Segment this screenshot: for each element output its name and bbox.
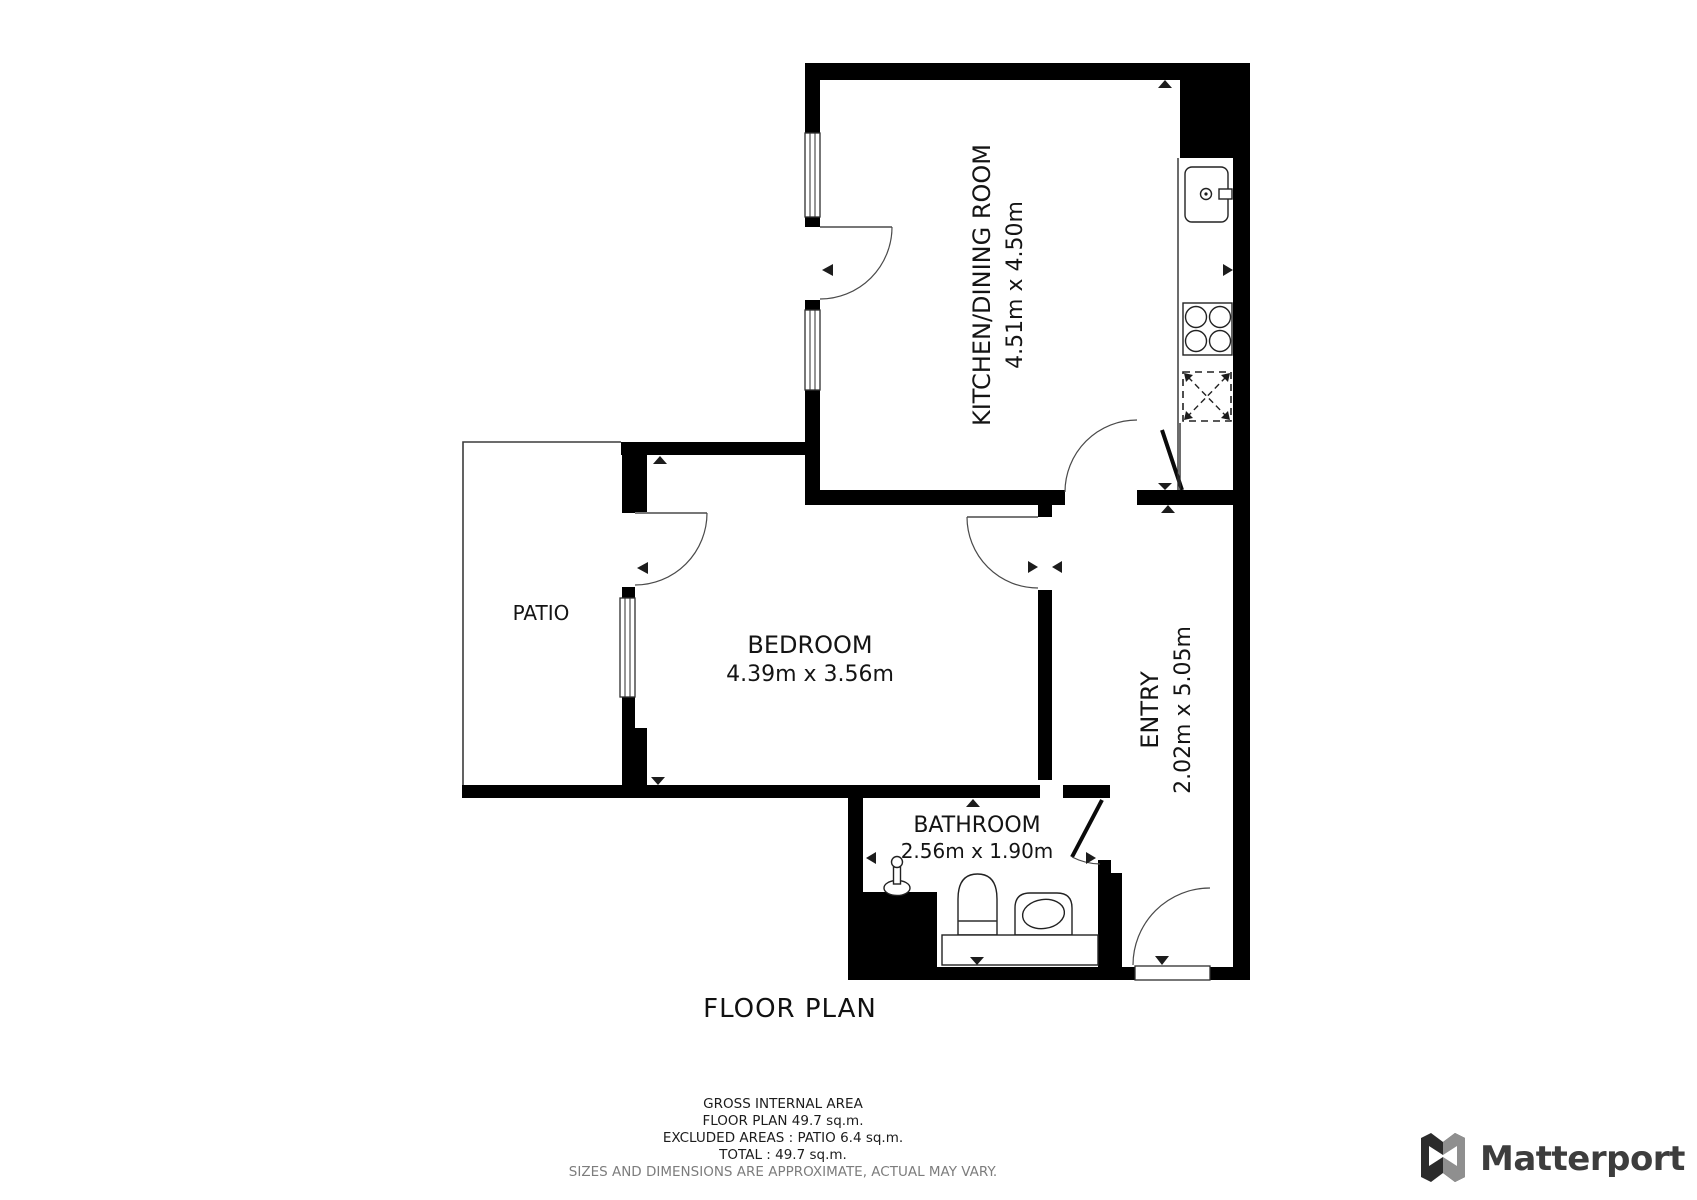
kitchen-dims: 4.51m x 4.50m [1003, 201, 1028, 369]
stove-icon [1183, 303, 1232, 355]
wall-bathroom-east-stub [1098, 860, 1111, 873]
bathroom-label: BATHROOM [913, 813, 1040, 838]
door-arrow-icon [1052, 561, 1062, 573]
area-summary: GROSS INTERNAL AREA FLOOR PLAN 49.7 sq.m… [433, 1096, 1133, 1181]
area-total: TOTAL : 49.7 sq.m. [433, 1147, 1133, 1164]
bathroom-door [1072, 800, 1102, 864]
front-door [1133, 888, 1210, 980]
matterport-logo-icon [1420, 1132, 1466, 1186]
wall-kitchen-west-2 [805, 217, 820, 227]
kitchen-label: KITCHEN/DINING ROOM [968, 144, 996, 426]
wall-bottom-right-of-door [1210, 967, 1250, 980]
dim-arrow-down-icon [1158, 483, 1172, 490]
area-heading: GROSS INTERNAL AREA [433, 1096, 1133, 1113]
wall-bottom-under-vanity [937, 967, 1098, 980]
matterport-logo-text: Matterport [1480, 1139, 1685, 1179]
door-arrow-icon [1155, 956, 1169, 965]
area-disclaimer: SIZES AND DIMENSIONS ARE APPROXIMATE, AC… [433, 1164, 1133, 1181]
wall-bedroom-west-3 [622, 697, 635, 785]
wall-kitchen-ne-block [1180, 80, 1250, 158]
kitchen-entry-door [1065, 420, 1182, 492]
wall-bedroom-west-2 [622, 587, 635, 598]
wall-kitchen-west-3 [805, 300, 820, 310]
bedroom-dims: 4.39m x 3.56m [726, 662, 894, 687]
kitchen-balcony-door [820, 227, 892, 299]
entry-label: ENTRY [1136, 671, 1164, 749]
wall-bedroom-west-1 [622, 442, 635, 513]
kitchen-window-2 [805, 310, 820, 390]
bedroom-label: BEDROOM [747, 631, 872, 659]
wall-bottom-long [462, 785, 1040, 798]
dim-arrow-up-icon [966, 799, 980, 807]
kitchen-window-1 [805, 133, 820, 217]
wall-east [1233, 158, 1250, 980]
matterport-logo: Matterport [1420, 1132, 1685, 1186]
doors [635, 227, 1210, 980]
wall-bottom-left-of-door [1098, 967, 1135, 980]
walls [462, 63, 1250, 980]
wall-bathroom-east-block [1098, 873, 1122, 967]
bedroom-window [620, 598, 635, 697]
dim-arrow-left-icon [866, 852, 876, 864]
area-floor-plan: FLOOR PLAN 49.7 sq.m. [433, 1113, 1133, 1130]
wall-entry-west [1038, 590, 1052, 780]
front-door-threshold [1135, 966, 1210, 980]
vanity-counter [942, 935, 1098, 965]
door-arrow-icon [822, 264, 833, 276]
door-arrow-icon [1028, 561, 1038, 573]
dim-arrow-up-icon [653, 456, 667, 464]
dim-arrow-up-icon [1158, 80, 1172, 88]
wall-bedroom-west-pilaster [635, 455, 647, 512]
wall-kitchen-top [805, 63, 1250, 80]
floor-plan-page: KITCHEN/DINING ROOM 4.51m x 4.50m BEDROO… [0, 0, 1697, 1200]
dim-arrow-down-icon [651, 777, 665, 785]
wall-entry-west-top [1038, 505, 1052, 517]
entry-dims: 2.02m x 5.05m [1171, 626, 1196, 794]
appliance-dashed-icon [1183, 372, 1231, 421]
wall-bathroom-west [848, 798, 863, 892]
kitchen-sink-icon [1185, 167, 1232, 222]
kitchen-fixtures [1178, 158, 1232, 490]
patio-label: PATIO [513, 601, 570, 625]
wall-bathroom-shower-mass [848, 892, 937, 980]
bathroom-dims: 2.56m x 1.90m [901, 839, 1054, 863]
door-arrow-icon [1086, 852, 1096, 864]
page-title: FLOOR PLAN [640, 994, 940, 1024]
wall-kitchen-west-1 [805, 80, 820, 133]
dim-arrow-right-icon [1223, 264, 1233, 276]
windows [620, 133, 820, 697]
wall-kitchen-west-4 [805, 390, 820, 490]
bedroom-door [635, 513, 707, 585]
wall-bedroom-top [621, 442, 818, 455]
wall-bathroom-top-right [1063, 785, 1110, 798]
area-excluded: EXCLUDED AREAS : PATIO 6.4 sq.m. [433, 1130, 1133, 1147]
bedroom-entry-door [967, 517, 1062, 588]
toilet-icon [1015, 893, 1072, 935]
wall-kitchen-south-right [1137, 490, 1233, 505]
dim-arrow-up-icon [1161, 505, 1175, 513]
bathroom-sink-icon [958, 874, 997, 935]
door-arrow-icon [637, 562, 648, 574]
wall-kitchen-south-left [805, 490, 1065, 505]
wall-bedroom-west-stub [635, 728, 647, 785]
